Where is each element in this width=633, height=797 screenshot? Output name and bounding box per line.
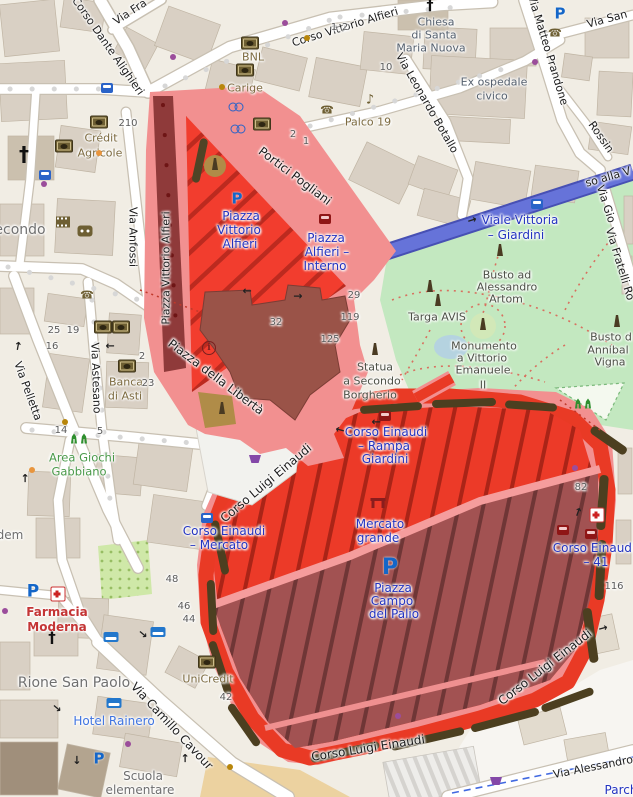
map-base [0, 0, 633, 797]
monument-pad [204, 155, 226, 177]
monument-plaza [470, 313, 496, 339]
map-canvas[interactable]: Corso Dante AlighieriVia FraCorso Vittor… [0, 0, 633, 797]
park-pond [434, 335, 468, 359]
